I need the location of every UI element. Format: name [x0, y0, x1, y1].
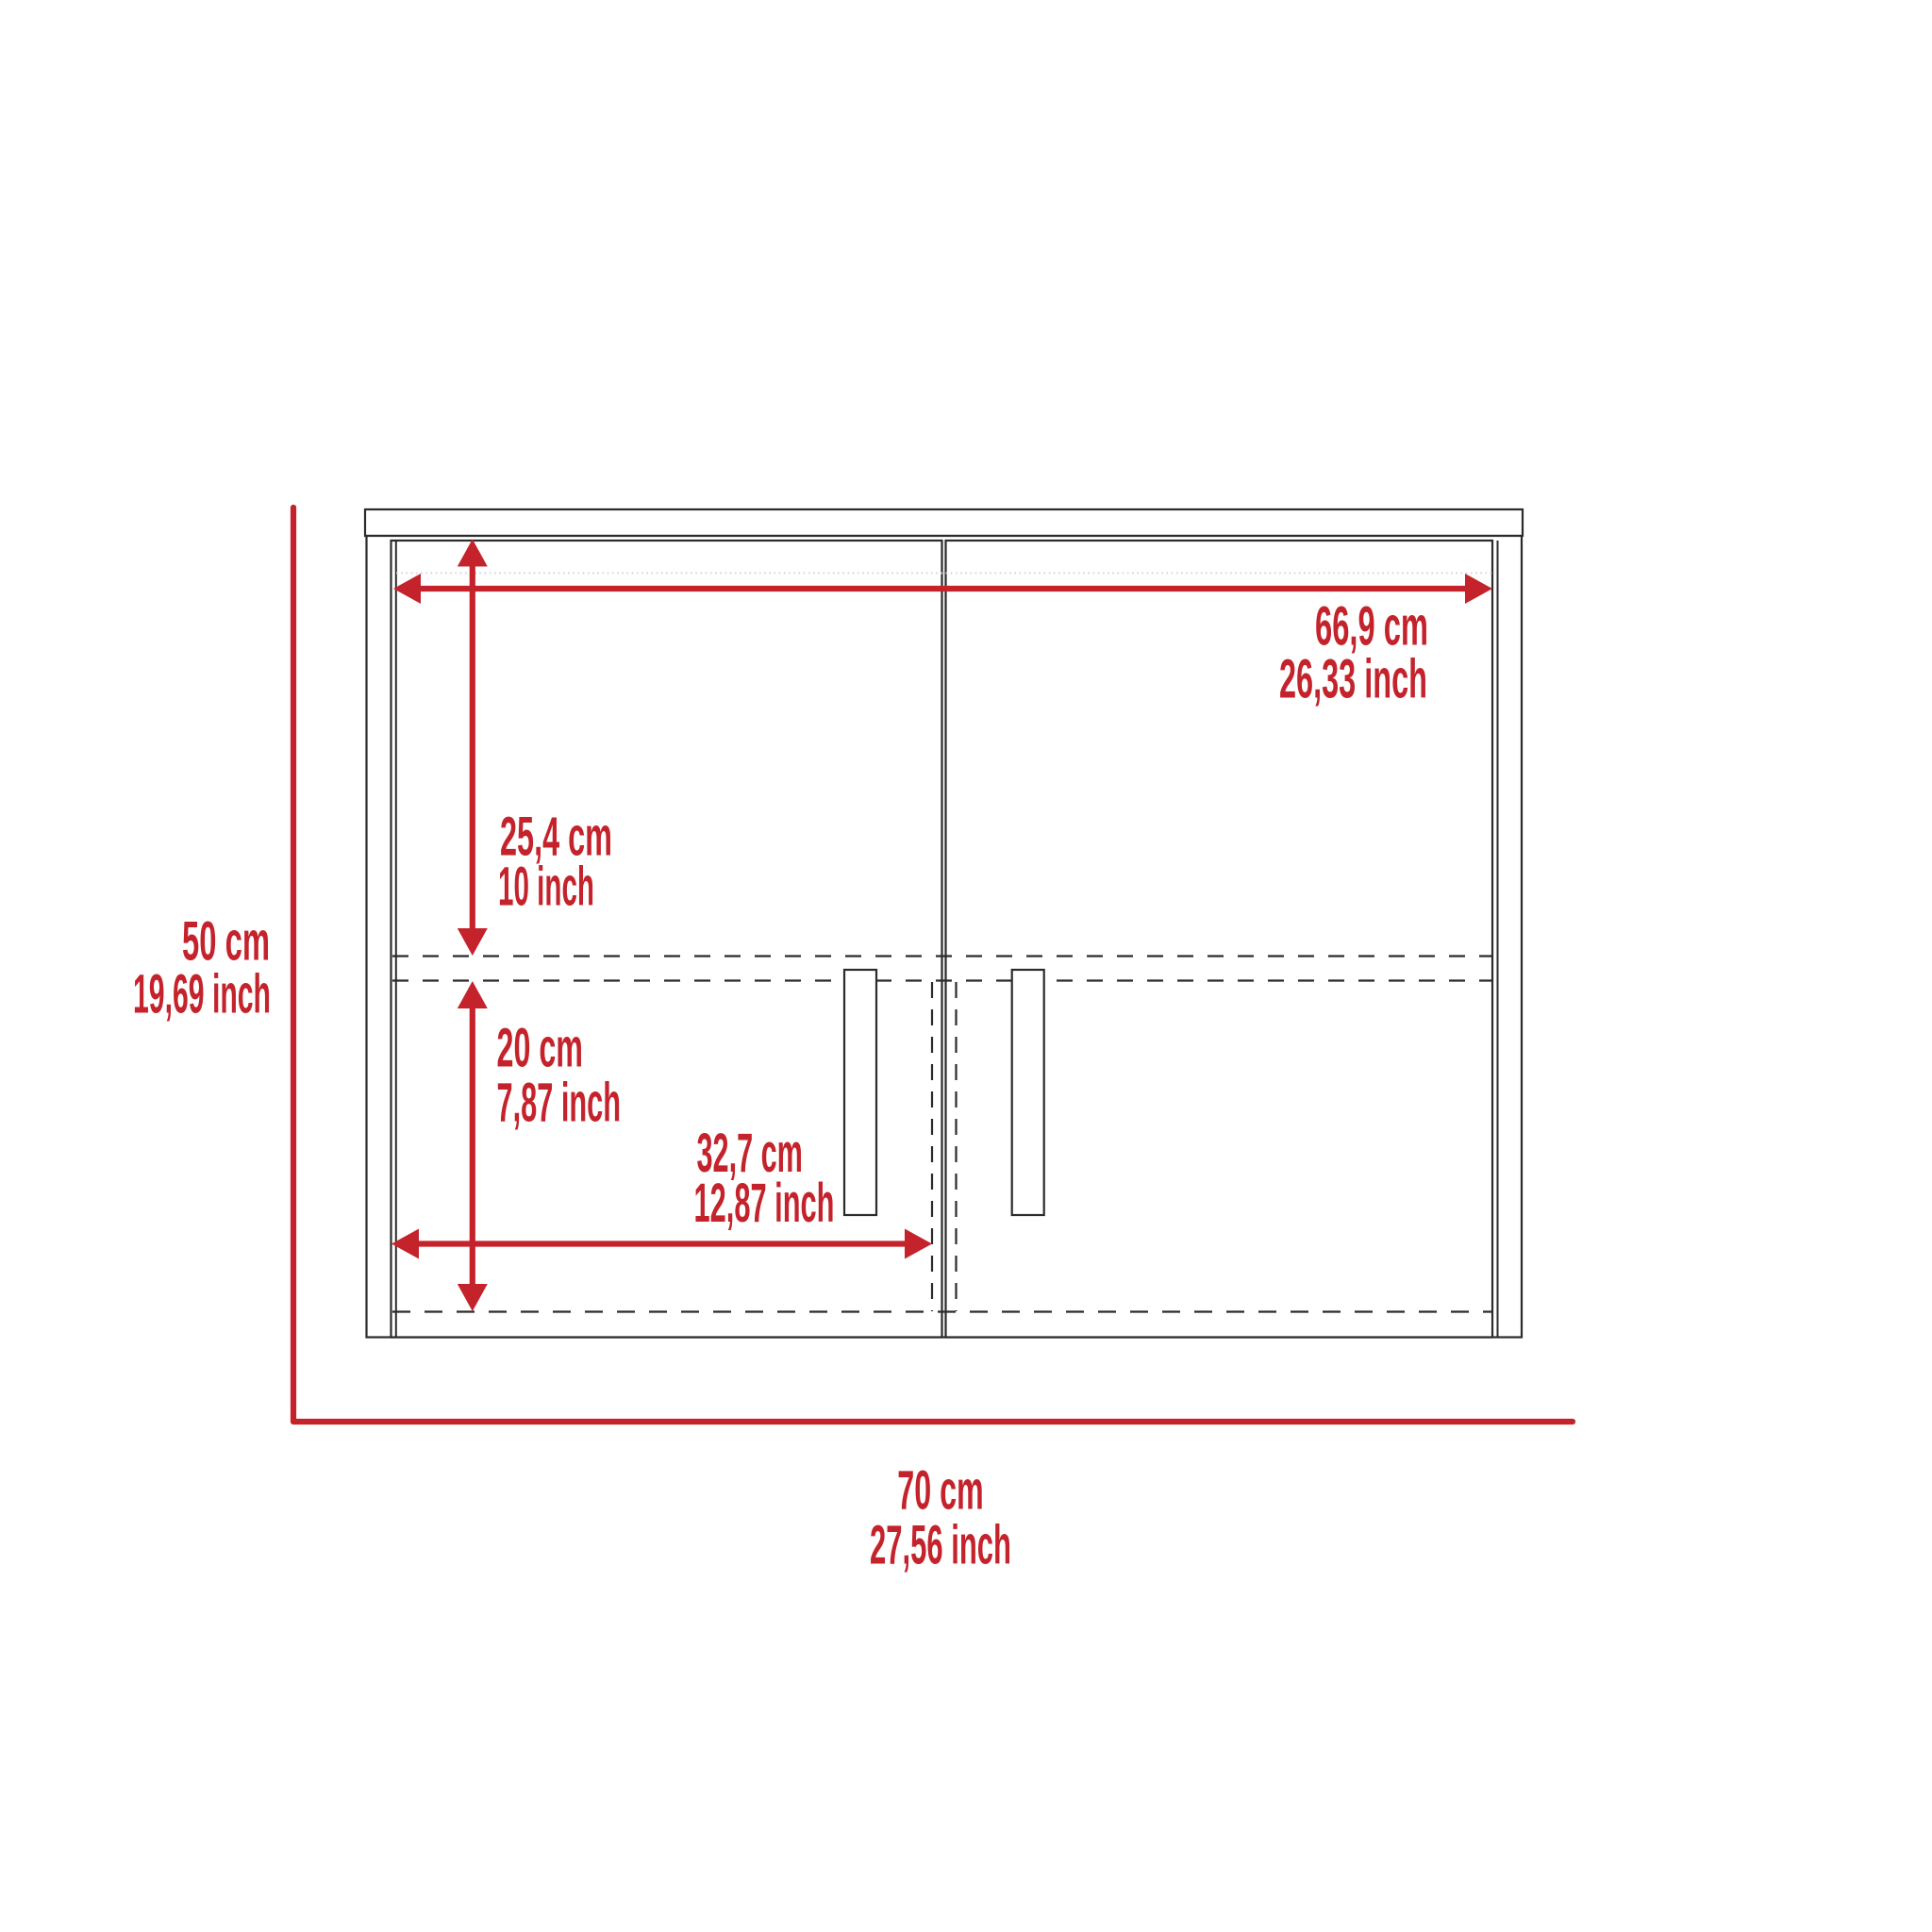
svg-text:19,69 inch: 19,69 inch — [133, 964, 271, 1025]
svg-text:70 cm: 70 cm — [897, 1460, 984, 1522]
svg-text:20 cm: 20 cm — [497, 1018, 584, 1079]
svg-text:26,33 inch: 26,33 inch — [1279, 649, 1427, 710]
svg-text:27,56 inch: 27,56 inch — [870, 1515, 1011, 1576]
svg-text:7,87 inch: 7,87 inch — [497, 1073, 622, 1134]
svg-text:10 inch: 10 inch — [498, 857, 594, 918]
svg-text:12,87 inch: 12,87 inch — [694, 1173, 835, 1234]
